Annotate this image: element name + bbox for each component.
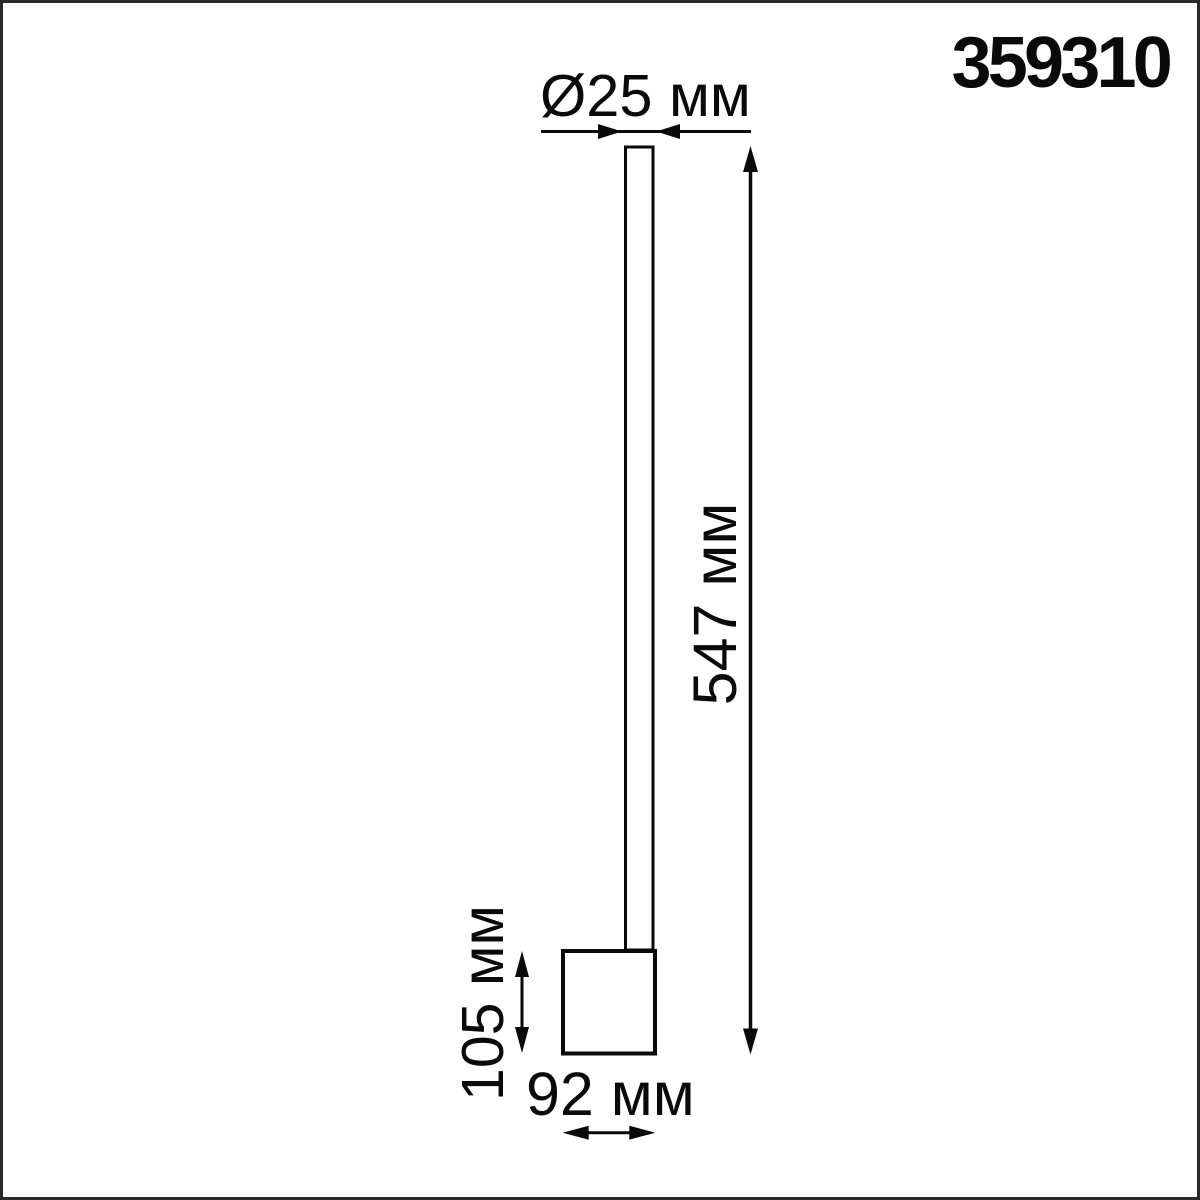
svg-text:105 мм: 105 мм [450, 905, 516, 1101]
svg-text:92 мм: 92 мм [526, 1060, 695, 1128]
svg-text:Ø25 мм: Ø25 мм [540, 62, 751, 129]
svg-text:359310: 359310 [952, 23, 1171, 103]
svg-text:547 мм: 547 мм [681, 503, 749, 706]
